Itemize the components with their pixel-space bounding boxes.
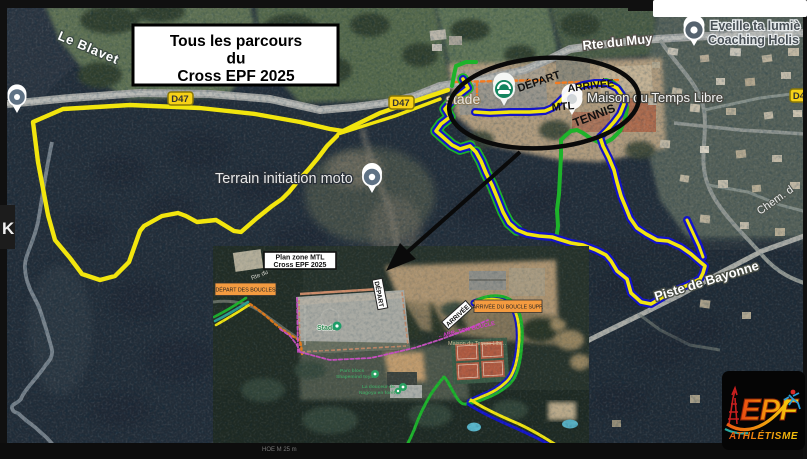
svg-text:Maison du Temps Libr...: Maison du Temps Libr... [448, 341, 506, 347]
svg-text:Cross EPF 2025: Cross EPF 2025 [274, 262, 327, 269]
svg-text:D47: D47 [171, 94, 188, 105]
svg-text:Plan zone MTL: Plan zone MTL [276, 255, 326, 262]
svg-text:du: du [227, 51, 246, 68]
svg-text:Eveille ta lumiè: Eveille ta lumiè [710, 19, 800, 33]
svg-text:Cross EPF 2025: Cross EPF 2025 [177, 68, 295, 85]
svg-text:MTL: MTL [551, 100, 575, 114]
svg-text:ATHLÉTISME: ATHLÉTISME [728, 429, 798, 442]
svg-text:HOE M 25 m: HOE M 25 m [262, 447, 297, 453]
svg-text:Nagoya en forêt: Nagoya en forêt [359, 390, 396, 396]
svg-text:Parc blocs: Parc blocs [340, 368, 365, 374]
svg-text:Shapemind toya: Shapemind toya [336, 374, 373, 380]
svg-text:ARRIVÉE DU BOUCLE SUPP.: ARRIVÉE DU BOUCLE SUPP. [473, 304, 544, 311]
svg-text:Coaching Holis: Coaching Holis [708, 33, 799, 47]
svg-text:Tous les parcours: Tous les parcours [170, 33, 302, 50]
svg-text:La douceur de: La douceur de [362, 384, 395, 390]
svg-text:K: K [2, 219, 15, 238]
svg-text:D47: D47 [392, 98, 409, 109]
svg-text:DÉPART DES BOUCLES: DÉPART DES BOUCLES [215, 287, 276, 294]
svg-text:Terrain initiation moto: Terrain initiation moto [215, 171, 353, 187]
